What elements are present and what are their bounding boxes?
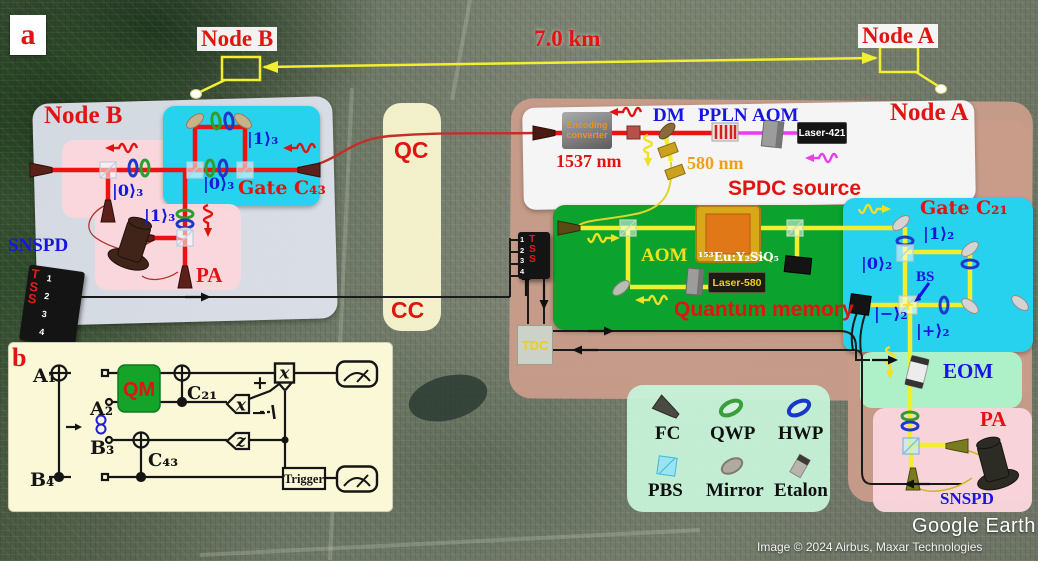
pbs-icon [177, 230, 193, 246]
fiber-coupler [946, 439, 968, 453]
memory-title: Quantum memory [674, 299, 854, 321]
pbs-icon [187, 162, 203, 178]
fiber-coupler [558, 221, 580, 235]
tss-channels: 1 2 3 4 [518, 232, 526, 279]
ket-0-3: |0⟩₃ [203, 176, 234, 193]
beam-dump [784, 256, 812, 275]
snspd-detector [967, 433, 1021, 494]
ket-1-3-pa: |1⟩₃ [144, 208, 175, 225]
pbs-icon [620, 220, 636, 236]
legend-qwp: QWP [710, 424, 755, 444]
pbs-icon [237, 162, 253, 178]
legend-etalon: Etalon [774, 481, 828, 501]
fiber-coupler [658, 142, 678, 158]
tss-ch: 1 [46, 273, 52, 284]
photon-icon [204, 205, 212, 237]
plus-outcome: + [252, 372, 268, 394]
ket-0-3-pink: |0⟩₃ [112, 183, 143, 200]
pa-b-label: PA [196, 264, 222, 286]
hwp-icon [786, 398, 811, 419]
pbs-icon [897, 245, 913, 261]
map-node-a-label: Node A [858, 24, 938, 48]
tss-ch: 2 [44, 291, 50, 302]
photon-symbols [105, 108, 894, 379]
tss-ch: 1 [520, 235, 524, 244]
minus-outcome: − [251, 402, 267, 424]
qc-label: QC [394, 138, 429, 162]
photon-icon [805, 154, 837, 162]
photon-icon [588, 234, 620, 242]
bs-label: BS [916, 270, 934, 286]
panel-a-tag: a [10, 15, 46, 55]
photon-icon [635, 296, 667, 304]
ppln-label: PPLN [698, 106, 748, 126]
x-box-label: x [278, 364, 290, 384]
aom-memory-label: AOM [641, 246, 687, 266]
qubit-b3: B₃ [90, 437, 114, 459]
gate-c21-label: Gate C₂₁ [920, 199, 1008, 219]
red-beams [48, 127, 712, 266]
mirror [1009, 293, 1031, 314]
aom-spdc-label: AOM [752, 106, 798, 126]
bs-pointer-arrow [914, 283, 929, 302]
fc-icon [652, 395, 682, 422]
legend-fc: FC [655, 424, 680, 444]
tss-ch: 3 [41, 309, 47, 320]
etalon-icon [790, 454, 810, 477]
node-a-title: Node A [890, 100, 968, 126]
map-node-b-label: Node B [197, 27, 277, 51]
wavelength-580: 580 nm [687, 154, 744, 173]
tss-ch: 3 [520, 256, 524, 265]
c21-label: C₂₁ [187, 383, 217, 404]
tss-device-b: TSS 1 2 3 4 [19, 264, 85, 347]
photon-icon [859, 205, 891, 213]
map-credit-line: Image © 2024 Airbus, Maxar Technologies [757, 540, 982, 554]
pbs-icon [787, 220, 803, 236]
arrow-down [540, 284, 549, 310]
c43-label: C₄₃ [148, 450, 178, 471]
filter-block [627, 126, 640, 139]
gate-c43-label: Gate C₄₃ [238, 179, 326, 199]
photon-icon [609, 108, 641, 116]
laser-580: Laser-580 [708, 272, 766, 293]
distance-label: 7.0 km [534, 27, 600, 51]
circuit-panel: b QM [8, 342, 393, 512]
aom-device [686, 268, 704, 295]
fiber-coupler [178, 266, 192, 288]
map-credit-brand: Google Earth [912, 515, 1036, 538]
figure: TSS 1 2 3 4 1 2 3 4 TSS TDC Encoding con… [0, 0, 1038, 561]
snspd-b-label: SNSPD [8, 236, 68, 256]
legend-pbs: PBS [648, 481, 683, 501]
z-meas-label: z [235, 432, 246, 452]
legend-mirror: Mirror [706, 481, 764, 501]
qubit-a2: A₂ [89, 398, 113, 420]
fiber-coupler [298, 163, 320, 177]
eom-label: EOM [943, 360, 993, 382]
encoding-converter: Encoding converter [562, 112, 612, 149]
photon-icon [644, 135, 652, 167]
pbs-icon [903, 438, 919, 454]
arrow-left [572, 346, 598, 355]
fiber-coupler [101, 200, 115, 222]
mirror-icon [719, 455, 745, 477]
fiber-coupler [533, 126, 555, 140]
spdc-title: SPDC source [728, 178, 861, 200]
qwp-icon [718, 398, 743, 419]
fiber-coupler [665, 164, 685, 180]
cc-label: CC [391, 298, 424, 322]
qubit-b4: B₄ [30, 469, 54, 491]
arrow-right [588, 327, 614, 336]
pbs-icon [657, 456, 677, 476]
photon-icon [283, 144, 315, 152]
ket-0-2: |0⟩₂ [861, 256, 892, 273]
ket-1-2: |1⟩₂ [923, 226, 954, 243]
tss-label: TSS [526, 232, 539, 279]
dm-label: DM [653, 106, 685, 126]
qm-label: QM [123, 379, 155, 401]
x-meas-label: x [235, 396, 247, 416]
ket-minus-2: |−⟩₂ [874, 306, 908, 323]
ket-plus-2: |+⟩₂ [916, 323, 950, 340]
wavelength-1537: 1537 nm [556, 152, 622, 171]
pa-a-label: PA [980, 408, 1006, 430]
node-b-title: Node B [44, 103, 122, 129]
qubit-a1: A₁ [32, 365, 56, 387]
ket-1-3: |1⟩₃ [247, 131, 278, 148]
trigger-label: Trigger [284, 472, 324, 486]
fiber-coupler [30, 163, 52, 177]
tss-ch: 2 [520, 246, 524, 255]
legend-hwp: HWP [778, 424, 823, 444]
pbs-icon [100, 162, 116, 178]
photon-icon [105, 144, 137, 152]
tdc-device: TDC [517, 325, 553, 365]
panel-a-letter: a [21, 18, 36, 52]
arrow-right [185, 293, 211, 302]
crystal-label: ¹⁵³Eu:Y₂SiO₅ [698, 251, 779, 264]
tss-ch: 4 [520, 267, 524, 276]
idler-fiber [578, 162, 671, 226]
panel-b-tag: b [12, 343, 26, 372]
laser-421: Laser-421 [797, 122, 847, 144]
tss-ch: 4 [39, 327, 45, 338]
tss-device-a: 1 2 3 4 TSS [518, 232, 550, 279]
snspd-a-label: SNSPD [940, 490, 994, 508]
